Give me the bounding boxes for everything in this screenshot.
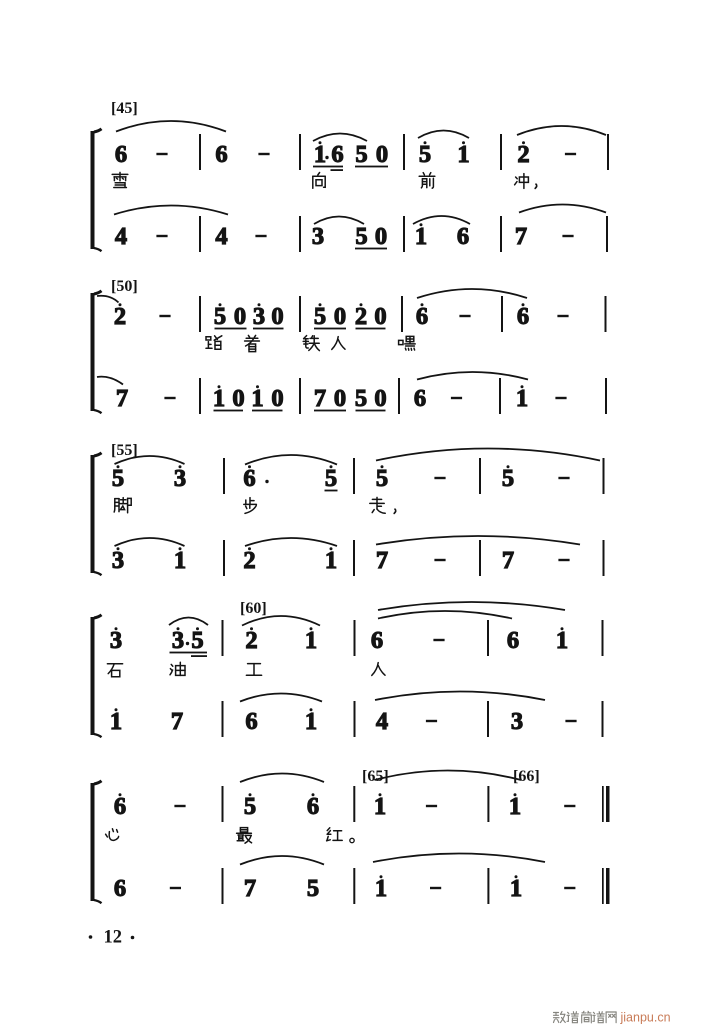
svg-text:5: 5	[355, 385, 367, 412]
svg-text:7: 7	[376, 547, 388, 574]
svg-text:5: 5	[214, 303, 226, 330]
svg-text:1: 1	[174, 547, 186, 574]
svg-text:6: 6	[507, 627, 519, 654]
svg-text:5: 5	[419, 141, 431, 168]
svg-text:6: 6	[414, 385, 426, 412]
svg-text:1: 1	[516, 385, 528, 412]
svg-text:1: 1	[251, 385, 263, 412]
svg-text:5: 5	[376, 465, 388, 492]
svg-text:3: 3	[112, 547, 124, 574]
svg-text:0: 0	[374, 385, 386, 412]
svg-text:6: 6	[115, 141, 127, 168]
svg-text:6: 6	[215, 141, 227, 168]
svg-text:4: 4	[376, 708, 388, 735]
svg-text:5: 5	[191, 627, 203, 654]
svg-text:0: 0	[234, 303, 246, 330]
svg-text:1: 1	[110, 708, 122, 735]
svg-text:2: 2	[243, 547, 255, 574]
svg-text:3: 3	[312, 223, 324, 250]
svg-text:[50]: [50]	[111, 278, 138, 295]
svg-text:7: 7	[314, 385, 326, 412]
svg-text:6: 6	[331, 141, 343, 168]
svg-text:5: 5	[244, 793, 256, 820]
svg-text:1: 1	[375, 875, 387, 902]
svg-text:12: 12	[103, 928, 122, 948]
svg-text:5: 5	[502, 465, 514, 492]
svg-text:0: 0	[271, 385, 283, 412]
svg-text:0: 0	[334, 385, 346, 412]
svg-text:1: 1	[457, 141, 469, 168]
svg-text:3: 3	[110, 627, 122, 654]
svg-text:6: 6	[243, 465, 255, 492]
svg-text:1: 1	[556, 627, 568, 654]
svg-text:1: 1	[213, 385, 225, 412]
svg-text:[60]: [60]	[240, 600, 267, 617]
svg-text:5: 5	[314, 303, 326, 330]
svg-text:[65]: [65]	[362, 768, 389, 785]
svg-text:2: 2	[245, 627, 257, 654]
svg-text:0: 0	[374, 303, 386, 330]
svg-text:6: 6	[371, 627, 383, 654]
svg-text:4: 4	[215, 223, 227, 250]
svg-text:7: 7	[244, 875, 256, 902]
svg-text:3: 3	[253, 303, 265, 330]
svg-text:5: 5	[355, 141, 367, 168]
svg-text:6: 6	[114, 875, 126, 902]
svg-text:5: 5	[355, 223, 367, 250]
svg-text:1: 1	[510, 875, 522, 902]
svg-text:7: 7	[116, 385, 128, 412]
svg-text:3: 3	[174, 465, 186, 492]
svg-text:3: 3	[172, 627, 184, 654]
svg-text:2: 2	[114, 303, 126, 330]
svg-text:5: 5	[325, 465, 337, 492]
svg-text:[66]: [66]	[513, 768, 540, 785]
svg-text:6: 6	[457, 223, 469, 250]
svg-text:[45]: [45]	[111, 100, 138, 117]
svg-text:6: 6	[307, 793, 319, 820]
svg-text:6: 6	[517, 303, 529, 330]
svg-text:6: 6	[114, 793, 126, 820]
svg-text:0: 0	[376, 141, 388, 168]
svg-text:7: 7	[502, 547, 514, 574]
svg-text:5: 5	[112, 465, 124, 492]
svg-text:4: 4	[115, 223, 127, 250]
svg-text:3: 3	[511, 708, 523, 735]
svg-text:6: 6	[245, 708, 257, 735]
svg-text:1: 1	[305, 708, 317, 735]
svg-text:1: 1	[325, 547, 337, 574]
svg-text:5: 5	[307, 875, 319, 902]
svg-text:2: 2	[355, 303, 367, 330]
svg-text:1: 1	[509, 793, 521, 820]
svg-text:0: 0	[375, 223, 387, 250]
svg-text:7: 7	[515, 223, 527, 250]
svg-text:0: 0	[334, 303, 346, 330]
svg-text:0: 0	[232, 385, 244, 412]
svg-text:jianpu.cn: jianpu.cn	[620, 1011, 671, 1025]
svg-text:6: 6	[416, 303, 428, 330]
svg-text:1: 1	[415, 223, 427, 250]
svg-text:2: 2	[517, 141, 529, 168]
svg-text:[55]: [55]	[111, 442, 138, 459]
svg-text:0: 0	[271, 303, 283, 330]
svg-text:7: 7	[171, 708, 183, 735]
svg-text:1: 1	[314, 141, 326, 168]
svg-text:1: 1	[305, 627, 317, 654]
svg-text:1: 1	[374, 793, 386, 820]
